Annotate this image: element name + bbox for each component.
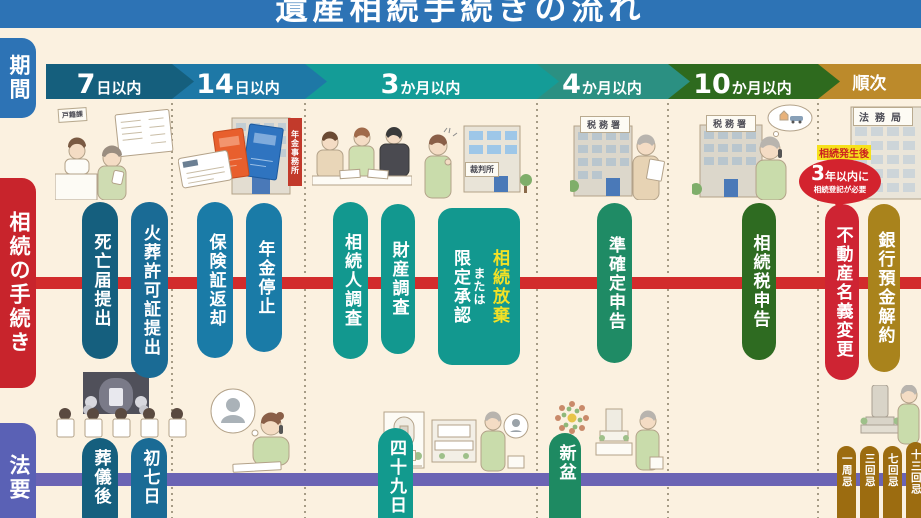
- timeline-segment-7days: 7日以内: [46, 64, 194, 99]
- timeline-segment-4months: 4か月以内: [536, 64, 690, 99]
- segment-unit: 順次: [853, 67, 887, 102]
- procedure-pill-renounce-or-limited: 相続放棄 または 限定承認: [438, 208, 520, 365]
- illustration-consult-call: [205, 385, 300, 473]
- memorial-label: 新盆: [557, 444, 574, 482]
- sidebar-item-memorials: 法要: [0, 423, 36, 518]
- segment-number: 10: [693, 67, 731, 102]
- procedure-label: 保険証返却: [207, 233, 224, 328]
- segment-unit: か月以内: [732, 71, 792, 106]
- pension-office-sign: 年金事務所: [288, 118, 302, 186]
- section-divider: [667, 103, 669, 518]
- illustration-city-office-counter: 戸籍課: [55, 105, 175, 200]
- procedure-label: 不動産名義変更: [834, 226, 851, 359]
- procedure-pill-cremation-permit: 火葬許可証提出: [131, 202, 168, 378]
- callout-deadline-bubble: 3年以内に 相続登記が必要: [799, 159, 881, 204]
- segment-unit: 日以内: [96, 71, 141, 106]
- procedure-label: 死亡届提出: [92, 233, 109, 328]
- illustration-funeral: [55, 372, 195, 438]
- procedure-label: 準確定申告: [606, 236, 623, 331]
- legal-bureau-sign: 法務局: [853, 107, 913, 126]
- illustration-family-discussion: [312, 112, 412, 200]
- timeline-segment-10months: 10か月以内: [667, 64, 840, 99]
- procedure-pill-realestate-title: 不動産名義変更: [825, 204, 859, 380]
- segment-unit: か月以内: [582, 71, 642, 106]
- memorial-label: 三回忌: [864, 453, 875, 488]
- procedure-pill-death-report: 死亡届提出: [82, 202, 118, 359]
- segment-number: 3: [381, 67, 400, 102]
- memorial-pill-49th-day: 四十九日: [378, 428, 413, 518]
- section-divider: [536, 103, 538, 518]
- segment-unit: か月以内: [400, 71, 460, 106]
- procedure-label-renounce: 相続放棄: [490, 249, 507, 325]
- memorial-label: 一周忌: [841, 453, 852, 488]
- page-title: 遺産相続手続きの流れ: [0, 0, 921, 28]
- procedure-multicolumn-label: 相続放棄 または 限定承認: [451, 249, 507, 325]
- timeline-segment-14days: 14日以内: [171, 64, 327, 99]
- procedure-label: 相続税申告: [751, 234, 768, 329]
- illustration-court: 裁判所: [422, 112, 532, 200]
- callout-deadline: 3年以内に: [799, 165, 881, 185]
- sidebar-item-period: 期間: [0, 38, 36, 118]
- memorial-pill-1st-anniv: 一周忌: [837, 446, 856, 518]
- memorial-pill-first-bon: 新盆: [549, 433, 581, 518]
- callout-deadline-number: 3: [811, 161, 825, 185]
- memorial-pill-7th-anniv: 七回忌: [883, 446, 902, 518]
- memorial-label: 七回忌: [887, 453, 898, 488]
- court-sign: 裁判所: [465, 162, 499, 177]
- illustration-tax-office-consult: 税務署: [692, 103, 814, 200]
- sidebar-label: 法要: [8, 454, 30, 502]
- timeline-segment-3months: 3か月以内: [304, 64, 559, 99]
- memorial-label: 十三回忌: [910, 449, 921, 495]
- procedure-pill-pension-stop: 年金停止: [246, 203, 282, 352]
- procedure-label: 相続人調査: [342, 233, 359, 328]
- sidebar-label: 相続の手続き: [8, 211, 30, 355]
- callout-deadline-text: 年以内に: [825, 170, 869, 183]
- procedure-pill-asset-research: 財産調査: [381, 204, 415, 354]
- tax-office-sign: 税務署: [706, 115, 756, 132]
- sidebar-label: 期間: [8, 54, 30, 102]
- tax-office-sign: 税務署: [580, 116, 630, 133]
- memorial-pill-7th-day: 初七日: [131, 438, 167, 518]
- procedure-pill-bank-account: 銀行預金解約: [868, 204, 900, 372]
- illustration-home-altar-prayer: [430, 408, 530, 473]
- procedure-pill-heir-research: 相続人調査: [333, 202, 368, 359]
- segment-unit: 日以内: [235, 71, 280, 106]
- callout-tail: [833, 201, 845, 210]
- memorial-pill-3rd-anniv: 三回忌: [860, 446, 879, 518]
- procedure-label: 火葬許可証提出: [141, 224, 158, 357]
- memorial-label: 初七日: [141, 449, 158, 506]
- procedure-label-limited: 限定承認: [451, 249, 468, 325]
- callout-condition: 相続発生後: [817, 145, 871, 160]
- memorial-pill-13th-anniv: 十三回忌: [906, 442, 921, 518]
- segment-number: 4: [562, 67, 581, 102]
- memorial-pill-after-funeral: 葬儀後: [82, 438, 118, 518]
- infographic-stage: 遺産相続手続きの流れ 期間 相続の手続き 法要 7日以内 14日以内 3か月以内…: [0, 0, 921, 518]
- title-banner: 遺産相続手続きの流れ: [0, 0, 921, 28]
- procedure-pill-inheritance-tax: 相続税申告: [742, 203, 776, 360]
- memorial-label: 葬儀後: [92, 449, 109, 506]
- procedure-pill-insurance-return: 保険証返却: [197, 202, 233, 358]
- koseki-section-sign: 戸籍課: [58, 107, 88, 123]
- procedure-label: 銀行預金解約: [876, 231, 893, 345]
- illustration-grave-visit: [852, 385, 921, 445]
- procedure-label-or: または: [473, 267, 485, 306]
- procedure-pill-quasi-final-return: 準確定申告: [597, 203, 632, 363]
- illustration-tax-office-filing: 税務署: [570, 110, 665, 200]
- segment-number: 14: [196, 67, 234, 102]
- illustration-bon-flower: [552, 398, 592, 436]
- illustration-bon-altar-prayer: [588, 405, 666, 473]
- callout-note: 相続登記が必要: [799, 185, 881, 194]
- procedure-label: 年金停止: [256, 240, 273, 316]
- sidebar-item-procedures: 相続の手続き: [0, 178, 36, 388]
- procedure-label: 財産調査: [390, 241, 407, 317]
- memorial-label: 四十九日: [387, 439, 404, 515]
- segment-number: 7: [77, 67, 96, 102]
- illustration-pension-office: 年金事務所: [178, 110, 306, 200]
